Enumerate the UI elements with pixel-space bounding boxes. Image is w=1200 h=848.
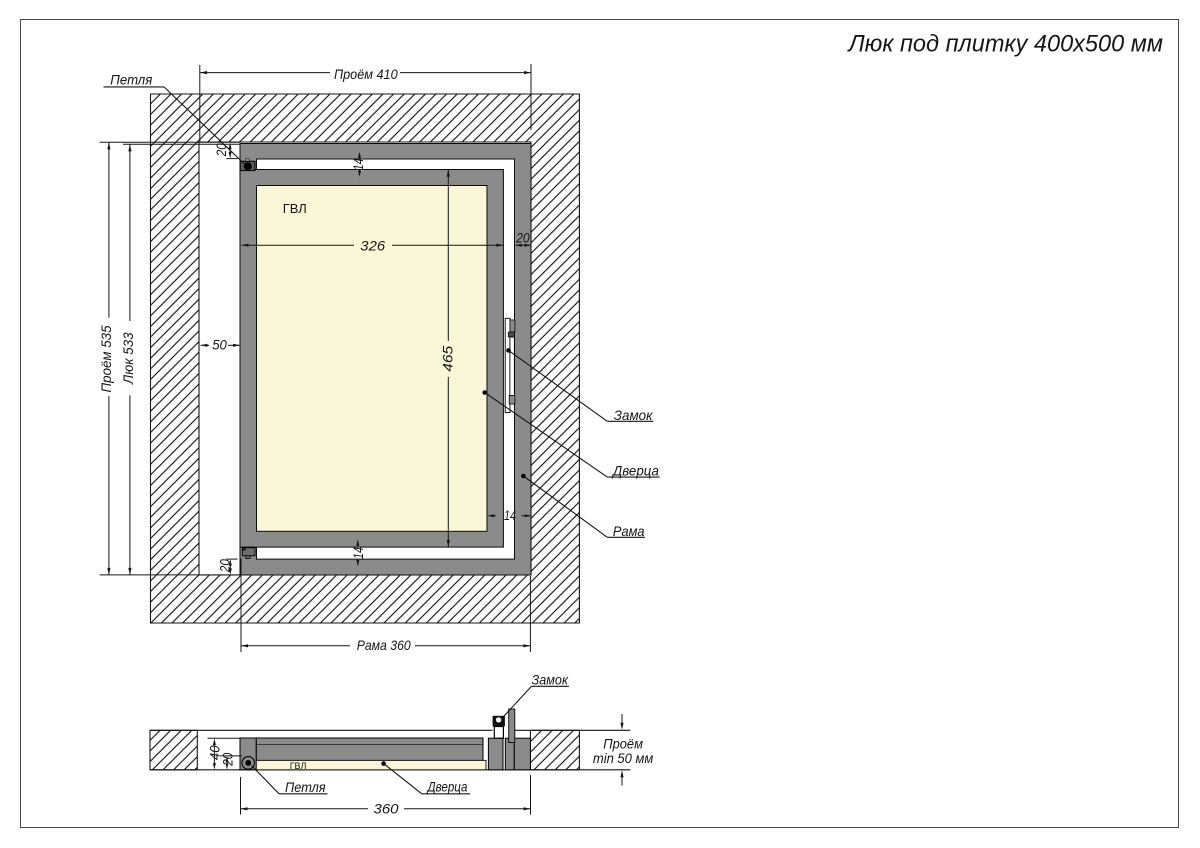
svg-text:20: 20	[220, 753, 236, 767]
svg-text:Петля: Петля	[285, 779, 326, 795]
svg-text:360: 360	[374, 801, 399, 817]
svg-text:Рама 360: Рама 360	[357, 637, 411, 653]
svg-text:20: 20	[216, 559, 232, 573]
svg-text:Рама: Рама	[613, 523, 645, 539]
svg-text:min 50 мм: min 50 мм	[593, 750, 654, 766]
svg-text:Люк 533: Люк 533	[120, 332, 136, 385]
svg-text:Петля: Петля	[110, 71, 152, 87]
svg-text:Проём 410: Проём 410	[334, 66, 398, 82]
svg-text:Замок: Замок	[532, 671, 570, 687]
svg-text:ГВЛ: ГВЛ	[290, 761, 307, 771]
svg-text:Проём: Проём	[603, 735, 643, 751]
svg-text:ГВЛ: ГВЛ	[283, 201, 307, 216]
svg-text:14: 14	[350, 158, 366, 170]
svg-text:14: 14	[350, 547, 366, 559]
svg-text:465: 465	[439, 346, 455, 372]
svg-text:Дверца: Дверца	[426, 778, 468, 794]
svg-text:326: 326	[360, 237, 385, 253]
svg-text:50: 50	[212, 337, 227, 353]
svg-text:20: 20	[515, 229, 530, 245]
svg-text:14: 14	[504, 507, 516, 523]
svg-text:Дверца: Дверца	[611, 463, 659, 479]
svg-text:Проём 535: Проём 535	[98, 325, 114, 392]
svg-text:Люк под плитку 400х500 мм: Люк под плитку 400х500 мм	[847, 31, 1163, 58]
svg-text:20: 20	[213, 143, 229, 157]
svg-text:Замок: Замок	[614, 407, 654, 423]
